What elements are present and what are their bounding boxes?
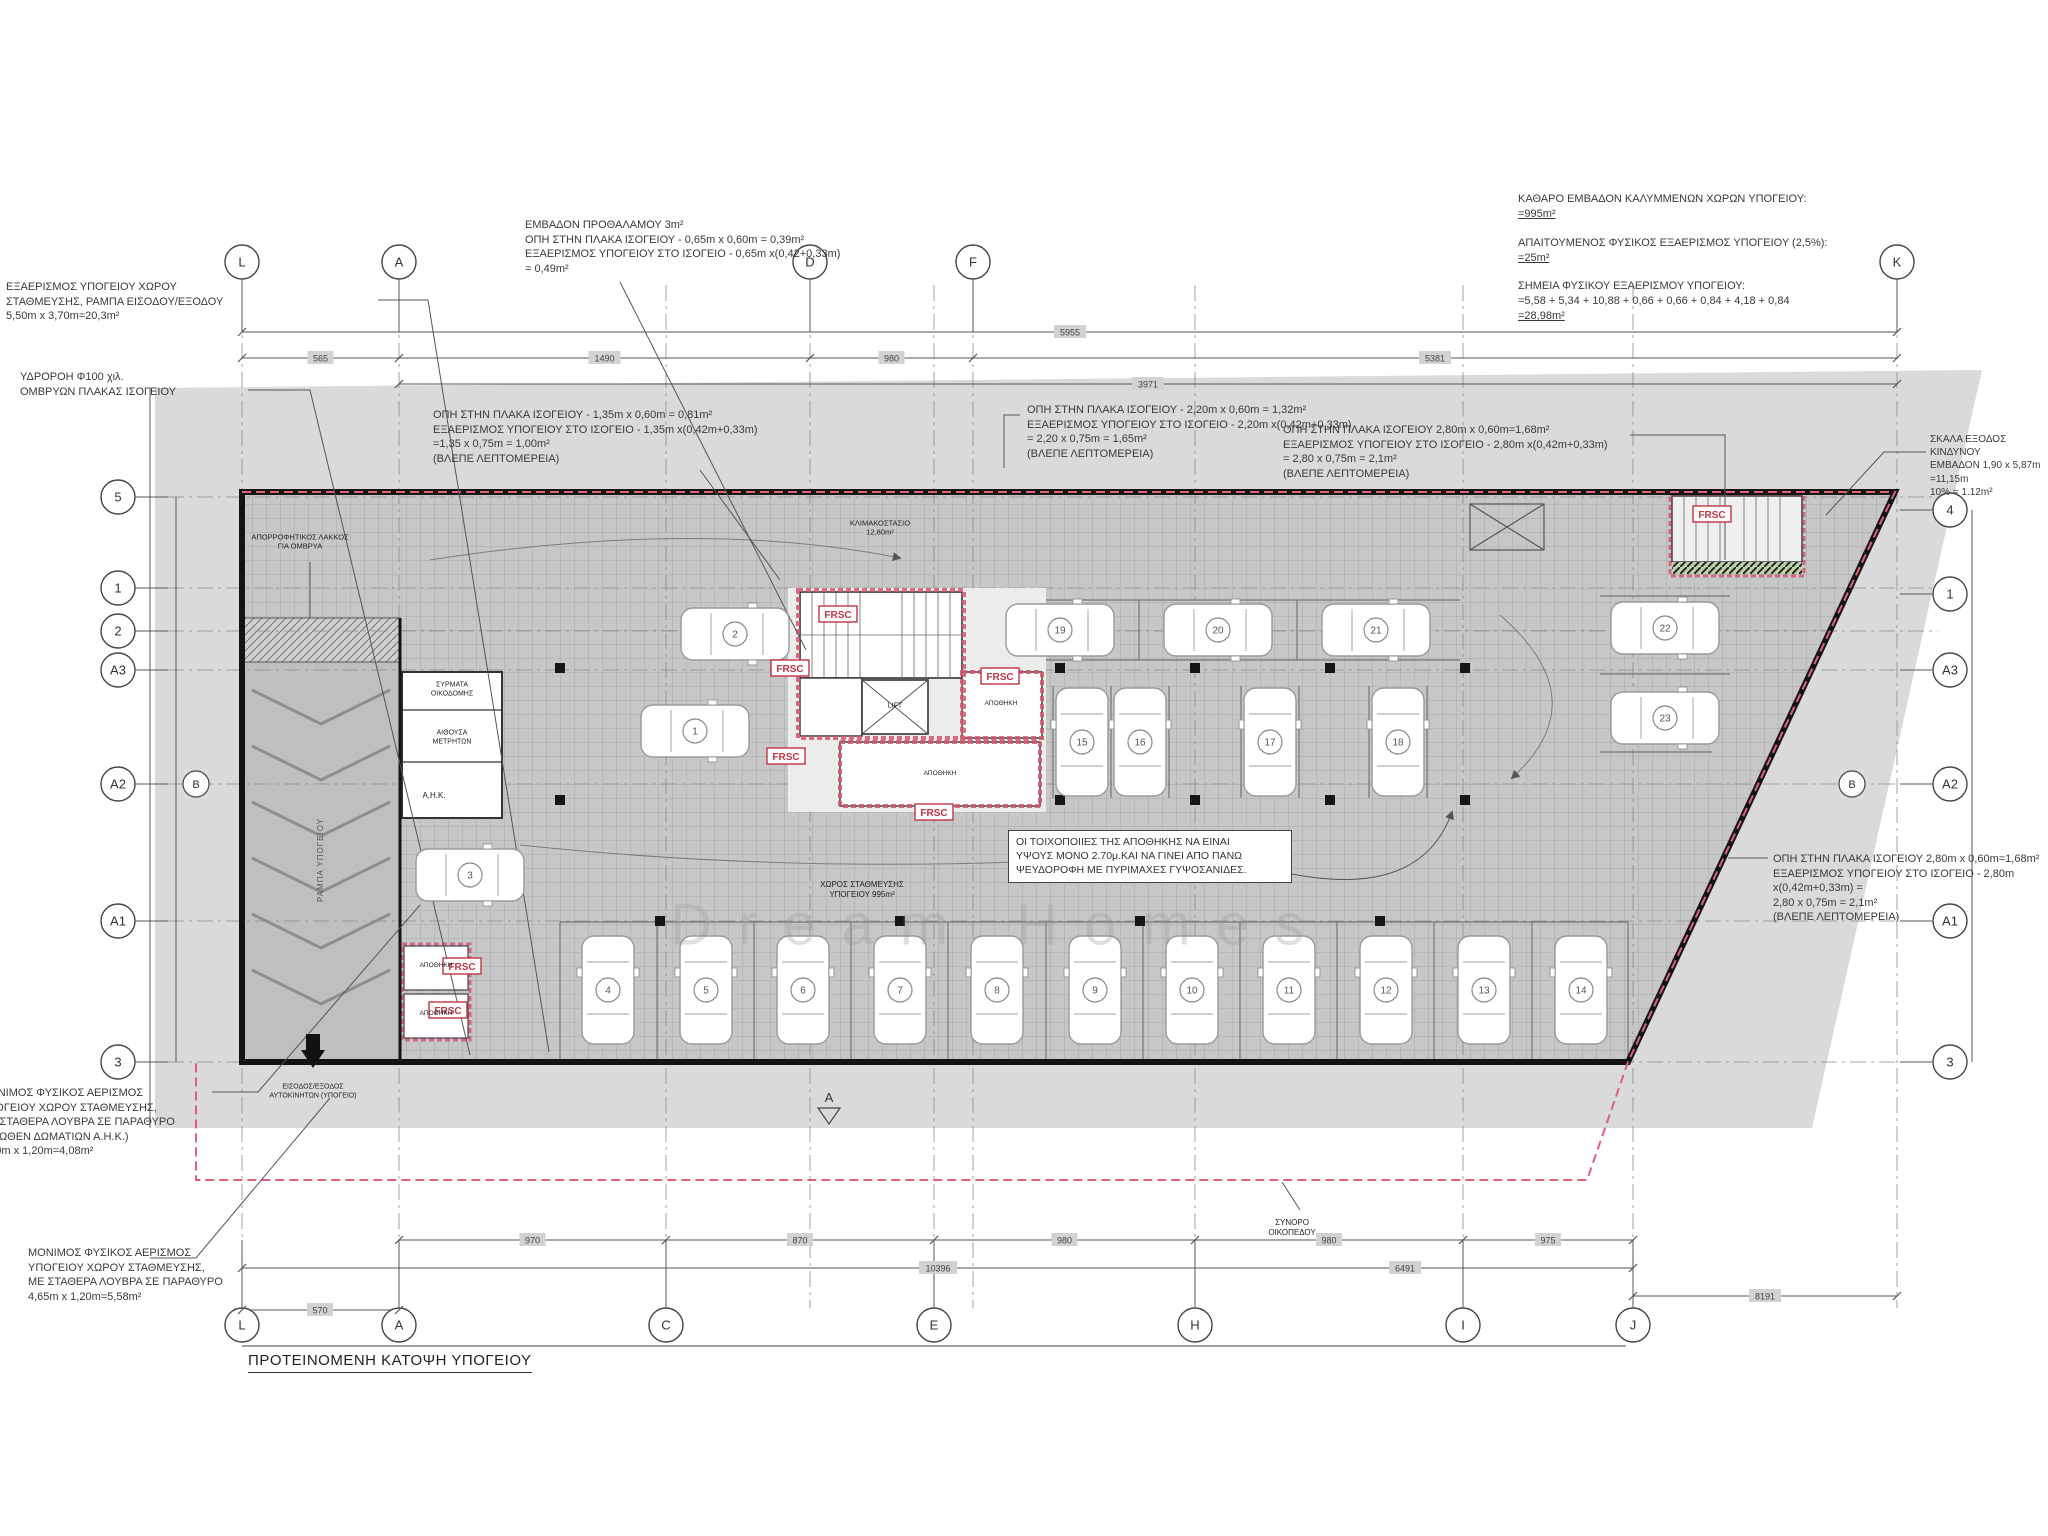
dimension-label: 5381 xyxy=(1419,351,1451,364)
dimension-label: 980 xyxy=(1316,1233,1342,1246)
frsc-label: FRSC xyxy=(981,668,1019,684)
area-summary: ΚΑΘΑΡΟ ΕΜΒΑΔΟΝ ΚΑΛΥΜΜΕΝΩΝ ΧΩΡΩΝ ΥΠΟΓΕΙΟΥ… xyxy=(1518,192,1938,338)
parking-number: 7 xyxy=(888,978,912,1002)
parking-number: 19 xyxy=(1048,618,1072,642)
svg-text:FRSC: FRSC xyxy=(1698,510,1725,521)
grid-bubble-left: A2 xyxy=(101,767,135,801)
room-label-syrmata: ΣΥΡΜΑΤΑ ΟΙΚΟΔΟΜΗΣ xyxy=(431,681,473,699)
svg-text:970: 970 xyxy=(525,1236,540,1246)
svg-text:F: F xyxy=(969,255,977,270)
note-storeroom-walls: ΟΙ ΤΟΙΧΟΠΟΙΙΕΣ ΤΗΣ ΑΠΟΘΗΚΗΣ ΝΑ ΕΙΝΑΙ ΥΨΟ… xyxy=(1008,830,1292,883)
parking-number: 6 xyxy=(791,978,815,1002)
note-emergency-stair: ΣΚΑΛΑ ΕΞΟΔΟΣ ΚΙΝΔΥΝΟΥ ΕΜΒΑΔΟΝ 1,90 x 5,8… xyxy=(1930,433,2048,499)
grid-bubble-bottom: E xyxy=(917,1308,951,1342)
section-b-marker: B xyxy=(183,771,209,797)
dimension-label: 975 xyxy=(1535,1233,1561,1246)
dimension-label: 5955 xyxy=(1054,325,1086,338)
summary-required-label: ΑΠΑΙΤΟΥΜΕΝΟΣ ΦΥΣΙΚΟΣ ΕΞΑΕΡΙΣΜΟΣ ΥΠΟΓΕΙΟΥ… xyxy=(1518,236,1938,251)
svg-text:6491: 6491 xyxy=(1395,1264,1415,1274)
svg-text:FRSC: FRSC xyxy=(772,752,799,763)
drawing-title: ΠΡΟΤΕΙΝΟΜΕΝΗ ΚΑΤΟΨΗ ΥΠΟΓΕΙΟΥ xyxy=(248,1352,532,1373)
parking-number: 21 xyxy=(1364,618,1388,642)
parking-number: 5 xyxy=(694,978,718,1002)
grid-bubble-right: A2 xyxy=(1933,767,1967,801)
svg-text:E: E xyxy=(930,1318,939,1333)
frsc-label: FRSC xyxy=(767,748,805,764)
grid-bubble-top: A xyxy=(382,245,416,279)
parking-number: 1 xyxy=(683,719,707,743)
svg-text:H: H xyxy=(1190,1318,1199,1333)
room-label-storeroom-2: ΑΠΟΘΗΚΗ xyxy=(924,770,957,778)
room-label-storeroom-1: ΑΠΟΘΗΚΗ xyxy=(985,700,1018,708)
svg-text:4: 4 xyxy=(1946,503,1953,518)
note-lobby-area: ΕΜΒΑΔΟΝ ΠΡΟΘΑΛΑΜΟΥ 3m² ΟΠΗ ΣΤΗΝ ΠΛΑΚΑ ΙΣ… xyxy=(525,218,840,276)
parking-number: 20 xyxy=(1206,618,1230,642)
dimension-label: 565 xyxy=(308,351,334,364)
parking-number: 22 xyxy=(1653,616,1677,640)
svg-text:15: 15 xyxy=(1076,738,1088,749)
dimension-label: 570 xyxy=(307,1303,333,1316)
svg-text:20: 20 xyxy=(1212,626,1224,637)
room-label-storeroom-4: ΑΠΟΘΗΚΗ xyxy=(420,1010,453,1018)
entry-exit-label: ΕΙΣΟΔΟΣ/ΕΞΟΔΟΣ ΑΥΤΟΚΙΝΗΤΩΝ (ΥΠΟΓΕΙΟ) xyxy=(269,1083,356,1101)
room-label-aithousa: ΑΙΘΟΥΣΑ ΜΕΤΡΗΤΩΝ xyxy=(433,729,472,747)
svg-text:FRSC: FRSC xyxy=(776,664,803,675)
note-ramp-ventilation: ΕΞΑΕΡΙΣΜΟΣ ΥΠΟΓΕΙΟΥ ΧΩΡΟΥ ΣΤΑΘΜΕΥΣΗΣ, ΡΑ… xyxy=(6,280,223,324)
parking-number: 4 xyxy=(596,978,620,1002)
svg-text:C: C xyxy=(661,1318,670,1333)
grid-bubble-bottom: H xyxy=(1178,1308,1212,1342)
parking-number: 15 xyxy=(1070,730,1094,754)
parking-number: 11 xyxy=(1277,978,1301,1002)
grid-bubble-bottom: J xyxy=(1616,1308,1650,1342)
dimension-label: 980 xyxy=(879,351,905,364)
frsc-label: FRSC xyxy=(771,660,809,676)
frsc-label: FRSC xyxy=(819,606,857,622)
summary-covered-label: ΚΑΘΑΡΟ ΕΜΒΑΔΟΝ ΚΑΛΥΜΜΕΝΩΝ ΧΩΡΩΝ ΥΠΟΓΕΙΟΥ… xyxy=(1518,192,1938,207)
dimension-label: 8191 xyxy=(1749,1289,1781,1302)
svg-text:19: 19 xyxy=(1054,626,1066,637)
room-label-storeroom-3: ΑΠΟΘΗΚΗ xyxy=(420,962,453,970)
note-opening-280-right: ΟΠΗ ΣΤΗΝ ΠΛΑΚΑ ΙΣΟΓΕΙΟΥ 2,80m x 0,60m=1,… xyxy=(1773,852,2048,925)
grid-bubble-left: 5 xyxy=(101,480,135,514)
svg-text:10396: 10396 xyxy=(925,1264,950,1274)
svg-text:10: 10 xyxy=(1186,986,1198,997)
parking-number: 8 xyxy=(985,978,1009,1002)
svg-text:5: 5 xyxy=(703,986,709,997)
absorption-pit xyxy=(244,618,400,662)
svg-text:3: 3 xyxy=(1946,1055,1953,1070)
grid-bubble-top: L xyxy=(225,245,259,279)
svg-text:13: 13 xyxy=(1478,986,1490,997)
summary-points-value: =28,98m² xyxy=(1518,309,1938,324)
parking-number: 3 xyxy=(458,863,482,887)
parking-number: 12 xyxy=(1374,978,1398,1002)
svg-text:1: 1 xyxy=(692,727,698,738)
frsc-label: FRSC xyxy=(915,804,953,820)
svg-text:5381: 5381 xyxy=(1425,354,1445,364)
dimension-label: 870 xyxy=(787,1233,813,1246)
svg-text:J: J xyxy=(1630,1318,1637,1333)
note-opening-280-top: ΟΠΗ ΣΤΗΝ ΠΛΑΚΑ ΙΣΟΓΕΙΟΥ 2,80m x 0,60m=1,… xyxy=(1283,423,1608,481)
grid-bubble-left: 3 xyxy=(101,1045,135,1079)
svg-text:I: I xyxy=(1461,1318,1465,1333)
svg-text:1: 1 xyxy=(114,581,121,596)
svg-text:A2: A2 xyxy=(1942,777,1958,792)
svg-text:A3: A3 xyxy=(110,663,126,678)
svg-text:11: 11 xyxy=(1284,986,1295,997)
svg-text:8: 8 xyxy=(994,986,1000,997)
svg-text:A3: A3 xyxy=(1942,663,1958,678)
svg-text:A2: A2 xyxy=(110,777,126,792)
grid-bubble-bottom: L xyxy=(225,1308,259,1342)
grid-bubble-right: A3 xyxy=(1933,653,1967,687)
summary-required-value: =25m² xyxy=(1518,251,1938,266)
svg-text:7: 7 xyxy=(897,986,903,997)
dimension-label: 980 xyxy=(1052,1233,1078,1246)
dimension-label: 1490 xyxy=(589,351,621,364)
grid-bubble-bottom: A xyxy=(382,1308,416,1342)
frsc-label: FRSC xyxy=(1693,506,1731,522)
dimension-label: 6491 xyxy=(1389,1261,1421,1274)
parking-number: 14 xyxy=(1569,978,1593,1002)
svg-text:975: 975 xyxy=(1540,1236,1555,1246)
svg-text:9: 9 xyxy=(1092,986,1098,997)
parking-number: 10 xyxy=(1180,978,1204,1002)
svg-text:980: 980 xyxy=(884,354,899,364)
summary-points-label: ΣΗΜΕΙΑ ΦΥΣΙΚΟΥ ΕΞΑΕΡΙΣΜΟΥ ΥΠΟΓΕΙΟΥ: xyxy=(1518,279,1938,294)
plot-boundary-label: ΣΥΝΟΡΟ ΟΙΚΟΠΕΔΟΥ xyxy=(1268,1218,1315,1238)
svg-text:FRSC: FRSC xyxy=(920,808,947,819)
svg-text:A: A xyxy=(395,1318,404,1333)
svg-text:A: A xyxy=(395,255,404,270)
svg-text:23: 23 xyxy=(1659,714,1671,725)
grid-bubble-bottom: I xyxy=(1446,1308,1480,1342)
svg-text:L: L xyxy=(238,255,245,270)
svg-text:2: 2 xyxy=(732,630,738,641)
grid-bubble-right: 3 xyxy=(1933,1045,1967,1079)
room-label-ahk: Α.Η.Κ. xyxy=(422,791,445,801)
summary-points-calc: =5,58 + 5,34 + 10,88 + 0,66 + 0,66 + 0,8… xyxy=(1518,294,1938,309)
svg-text:A: A xyxy=(825,1090,834,1105)
svg-text:1490: 1490 xyxy=(594,354,614,364)
room-label-stair: ΚΛΙΜΑΚΟΣΤΑΣΙΟ 12,80m² xyxy=(850,519,910,538)
svg-text:14: 14 xyxy=(1575,986,1587,997)
parking-number: 9 xyxy=(1083,978,1107,1002)
svg-text:3: 3 xyxy=(114,1055,121,1070)
svg-text:2: 2 xyxy=(114,624,121,639)
watermark: Dream Homes xyxy=(670,892,1330,959)
svg-text:21: 21 xyxy=(1370,626,1382,637)
svg-text:FRSC: FRSC xyxy=(986,672,1013,683)
svg-text:18: 18 xyxy=(1392,738,1404,749)
svg-text:980: 980 xyxy=(1057,1236,1072,1246)
grid-bubble-top: F xyxy=(956,245,990,279)
note-permanent-vent-1: ΜΟΝΙΜΟΣ ΦΥΣΙΚΟΣ ΑΕΡΙΣΜΟΣ ΥΠΟΓΕΙΟΥ ΧΩΡΟΥ … xyxy=(0,1086,175,1159)
grid-bubble-left: A1 xyxy=(101,904,135,938)
note-permanent-vent-2: ΜΟΝΙΜΟΣ ΦΥΣΙΚΟΣ ΑΕΡΙΣΜΟΣ ΥΠΟΓΕΙΟΥ ΧΩΡΟΥ … xyxy=(28,1246,223,1304)
svg-text:B: B xyxy=(1848,779,1855,791)
dimension-label: 3971 xyxy=(1132,377,1164,390)
parking-number: 16 xyxy=(1128,730,1152,754)
grid-bubble-right: 1 xyxy=(1933,577,1967,611)
svg-text:8191: 8191 xyxy=(1755,1292,1775,1302)
svg-text:22: 22 xyxy=(1659,624,1671,635)
parking-number: 2 xyxy=(723,622,747,646)
svg-text:870: 870 xyxy=(792,1236,807,1246)
svg-text:FRSC: FRSC xyxy=(824,610,851,621)
svg-text:3971: 3971 xyxy=(1138,380,1158,390)
room-label-lift: LIFT xyxy=(888,703,902,712)
dimension-label: 10396 xyxy=(919,1261,957,1274)
svg-text:L: L xyxy=(238,1318,245,1333)
svg-text:1: 1 xyxy=(1946,587,1953,602)
svg-text:12: 12 xyxy=(1380,986,1392,997)
svg-text:5: 5 xyxy=(114,490,121,505)
svg-text:565: 565 xyxy=(313,354,328,364)
grid-bubble-left: 1 xyxy=(101,571,135,605)
svg-text:3: 3 xyxy=(467,871,473,882)
svg-text:17: 17 xyxy=(1264,738,1276,749)
svg-text:16: 16 xyxy=(1134,738,1146,749)
svg-text:A1: A1 xyxy=(110,914,126,929)
parking-number: 13 xyxy=(1472,978,1496,1002)
parking-number: 18 xyxy=(1386,730,1410,754)
emergency-stair xyxy=(1670,494,1804,576)
svg-text:B: B xyxy=(192,779,199,791)
note-downpipe: ΥΔΡΟΡΟΗ Φ100 χιλ. ΟΜΒΡΥΩΝ ΠΛΑΚΑΣ ΙΣΟΓΕΙΟ… xyxy=(20,370,176,399)
svg-text:570: 570 xyxy=(312,1306,327,1316)
dimension-label: 970 xyxy=(520,1233,546,1246)
grid-bubble-left: A3 xyxy=(101,653,135,687)
section-b-marker: B xyxy=(1839,771,1865,797)
parking-number: 17 xyxy=(1258,730,1282,754)
grid-bubble-bottom: C xyxy=(649,1308,683,1342)
summary-covered-value: =995m² xyxy=(1518,207,1938,222)
svg-text:6: 6 xyxy=(800,986,806,997)
room-label-pit: ΑΠΟΡΡΟΦΗΤΙΚΟΣ ΛΑΚΚΟΣ ΓΙΑ ΟΜΒΡΥΑ xyxy=(251,533,348,552)
floor-plan-sheet: { "title": "ΠΡΟΤΕΙΝΟΜΕΝΗ ΚΑΤΟΨΗ ΥΠΟΓΕΙΟΥ… xyxy=(0,0,2048,1536)
note-opening-135: ΟΠΗ ΣΤΗΝ ΠΛΑΚΑ ΙΣΟΓΕΙΟΥ - 1,35m x 0,60m … xyxy=(433,408,758,466)
svg-text:5955: 5955 xyxy=(1060,328,1080,338)
grid-bubble-left: 2 xyxy=(101,614,135,648)
parking-number: 23 xyxy=(1653,706,1677,730)
svg-text:4: 4 xyxy=(605,986,611,997)
svg-text:980: 980 xyxy=(1321,1236,1336,1246)
room-label-ramp: ΡΑΜΠΑ ΥΠΟΓΕΙΟΥ xyxy=(316,818,326,902)
